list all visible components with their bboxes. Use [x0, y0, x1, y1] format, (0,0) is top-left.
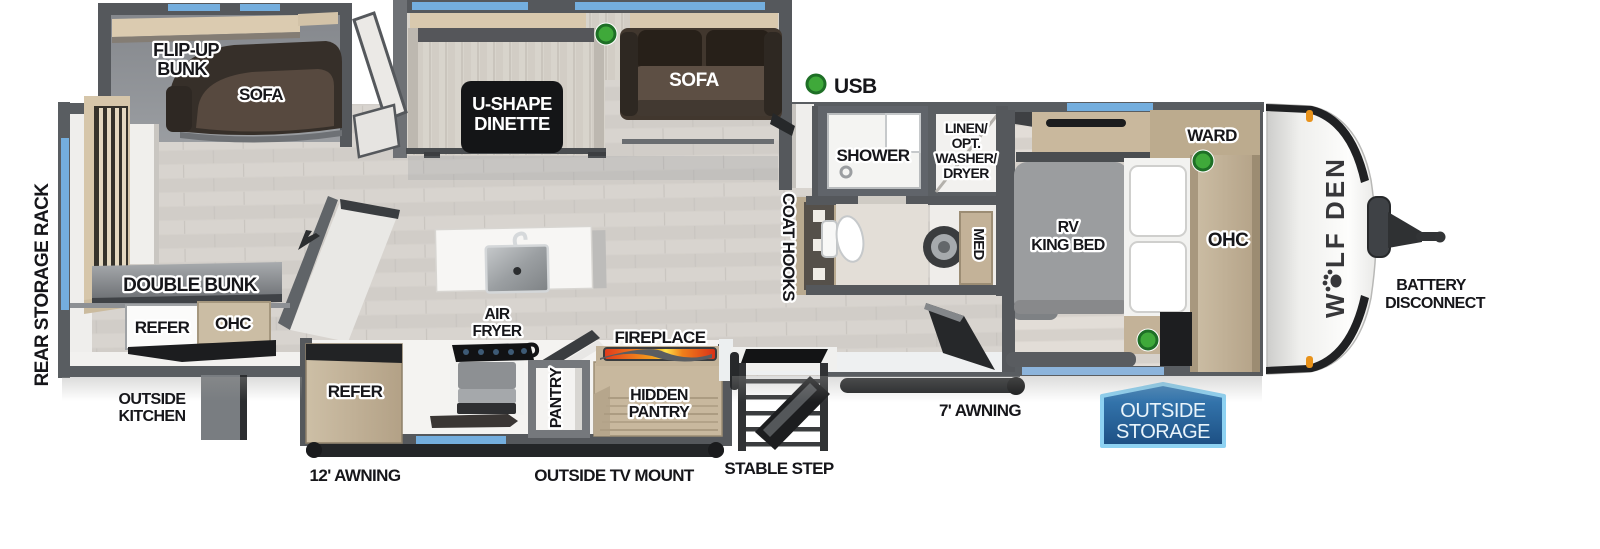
svg-text:RV: RV [1058, 219, 1080, 236]
svg-text:SOFA: SOFA [239, 85, 283, 104]
svg-text:DOUBLE BUNK: DOUBLE BUNK [123, 275, 258, 296]
svg-text:FLIP-UP: FLIP-UP [153, 40, 219, 60]
svg-text:OUTSIDE: OUTSIDE [1120, 400, 1206, 422]
svg-text:7' AWNING: 7' AWNING [939, 401, 1021, 420]
svg-text:FRYER: FRYER [473, 323, 522, 340]
svg-text:SHOWER: SHOWER [837, 146, 910, 165]
svg-text:BATTERY: BATTERY [1396, 277, 1467, 294]
svg-text:KITCHEN: KITCHEN [119, 408, 186, 425]
svg-text:STORAGE: STORAGE [1116, 421, 1210, 443]
svg-text:FIREPLACE: FIREPLACE [615, 328, 706, 347]
svg-text:OPT.: OPT. [952, 135, 981, 151]
svg-text:REFER: REFER [135, 318, 190, 337]
svg-text:SOFA: SOFA [669, 70, 720, 91]
svg-text:USB: USB [834, 75, 877, 98]
svg-text:OHC: OHC [1208, 230, 1249, 251]
svg-text:LINEN/: LINEN/ [945, 120, 988, 136]
svg-text:REAR STORAGE RACK: REAR STORAGE RACK [32, 183, 53, 387]
svg-text:COAT HOOKS: COAT HOOKS [779, 193, 798, 301]
svg-text:DINETTE: DINETTE [474, 113, 550, 134]
svg-text:STABLE STEP: STABLE STEP [724, 459, 834, 478]
svg-text:PANTRY: PANTRY [629, 404, 690, 421]
svg-text:LF DEN: LF DEN [1320, 156, 1350, 268]
svg-text:DRYER: DRYER [943, 165, 989, 181]
svg-text:MED: MED [970, 228, 987, 260]
svg-text:OUTSIDE TV MOUNT: OUTSIDE TV MOUNT [534, 466, 695, 485]
svg-text:KING BED: KING BED [1031, 237, 1104, 254]
svg-text:HIDDEN: HIDDEN [630, 387, 688, 404]
svg-text:OHC: OHC [215, 314, 251, 333]
svg-text:PANTRY: PANTRY [548, 367, 565, 428]
svg-text:BUNK: BUNK [157, 59, 207, 79]
svg-text:DISCONNECT: DISCONNECT [1385, 295, 1486, 312]
svg-text:OUTSIDE: OUTSIDE [119, 391, 187, 408]
svg-text:REFER: REFER [328, 382, 383, 401]
svg-text:12' AWNING: 12' AWNING [310, 466, 401, 485]
svg-text:U-SHAPE: U-SHAPE [472, 93, 552, 114]
svg-text:WASHER/: WASHER/ [935, 150, 997, 166]
svg-text:AIR: AIR [485, 306, 510, 323]
svg-text:WARD: WARD [1187, 126, 1237, 145]
svg-text:W: W [1320, 290, 1350, 318]
